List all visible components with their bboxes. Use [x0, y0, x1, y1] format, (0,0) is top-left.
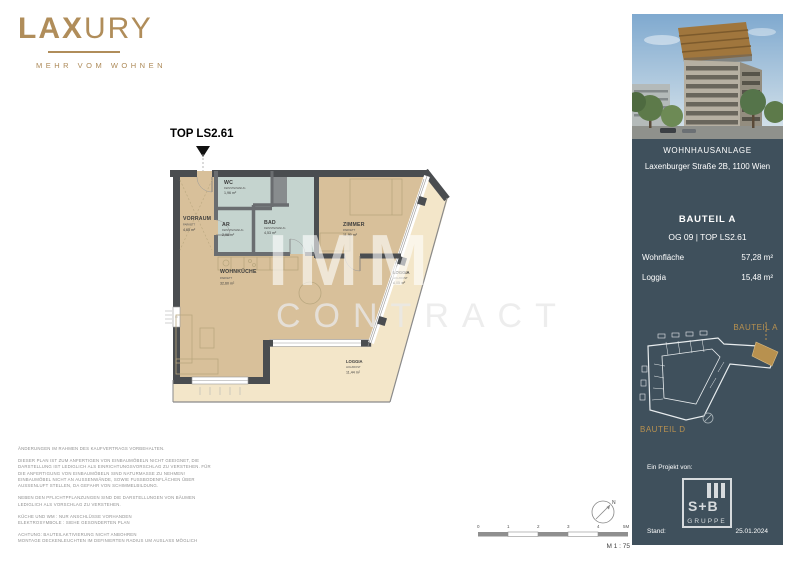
legal-p4: KÜCHE UND WM : NUR ANSCHLÜSSE VORHANDEN …	[18, 514, 248, 526]
room-area: 11,44 m²	[346, 371, 361, 375]
siteplan-bauteil-d: BAUTEIL D	[640, 425, 686, 434]
project-block: WOHNHAUSANLAGE Laxenburger Straße 2B, 11…	[632, 146, 783, 171]
room-bad-upper-floor	[287, 173, 315, 205]
room-floor: HOLZROST	[346, 365, 361, 369]
floor-top-label: OG 09 | TOP LS2.61	[642, 232, 773, 242]
room-name: BAD	[264, 220, 276, 226]
room-area: 4,65 m²	[183, 228, 196, 232]
room-floor: FEINSTEINZEUG	[224, 186, 246, 190]
room-area: 4,05 m²	[393, 281, 406, 285]
scale-tick: 2	[537, 524, 540, 529]
stand-row: Stand: 25.01.2024	[647, 528, 768, 535]
brand-wordmark-light: URY	[84, 12, 153, 45]
legal-p1: ÄNDERUNGEN IM RAHMEN DES KAUFVERTRAGS VO…	[18, 446, 248, 452]
scale-seg-dark	[478, 532, 508, 537]
project-title: WOHNHAUSANLAGE	[632, 146, 783, 155]
sb-logo-bars-icon	[707, 483, 725, 498]
room-area: 11,90 m²	[343, 233, 358, 237]
room-floor: PARKETT	[343, 228, 356, 232]
legal-p2: DIESER PLAN IST ZUM ANFERTIGEN VON EINBA…	[18, 458, 248, 489]
scale-tick: 4	[597, 524, 600, 529]
building-photo	[632, 14, 783, 139]
scale-seg-dark	[538, 532, 568, 537]
area-row: Loggia 15,48 m²	[642, 273, 773, 282]
scale-bar: N 0 1 2 3 4 5M M 1 : 75	[470, 496, 640, 554]
room-name: ZIMMER	[343, 222, 365, 228]
sidebar: WOHNHAUSANLAGE Laxenburger Straße 2B, 11…	[632, 14, 783, 545]
room-area: 4,53 m²	[264, 231, 277, 235]
scale-seg-dark	[598, 532, 628, 537]
room-name: WOHNKÜCHE	[220, 268, 257, 275]
room-floor: PARKETT	[183, 223, 196, 227]
sb-gruppe-logo: S+B GRUPPE	[682, 478, 732, 528]
floorplan-page: LAXURY MEHR VOM WOHNEN TOP LS2.61	[0, 0, 800, 565]
sb-logo-text: S+B	[688, 498, 719, 514]
sb-logo-subtext: GRUPPE	[684, 518, 730, 525]
room-floor: FEINSTEINZEUG	[222, 228, 244, 232]
brand-divider	[48, 51, 120, 53]
scale-tick: 0	[477, 524, 480, 529]
stand-label: Stand:	[647, 528, 666, 535]
bauteil-label: BAUTEIL A	[642, 214, 773, 225]
area-row-label: Wohnfläche	[642, 253, 684, 262]
legal-p5: ACHTUNG: BAUTEILAKTIVIERUNG NICHT ANBOHR…	[18, 532, 248, 544]
project-address: Laxenburger Straße 2B, 1100 Wien	[632, 162, 783, 171]
area-row-value: 57,28 m²	[741, 253, 773, 262]
legal-notes: ÄNDERUNGEN IM RAHMEN DES KAUFVERTRAGS VO…	[18, 446, 248, 551]
stand-date: 25.01.2024	[735, 528, 768, 535]
glass-wall-post-a	[263, 340, 273, 347]
cloud	[748, 28, 776, 36]
room-name: WC	[224, 180, 233, 186]
unit-block: BAUTEIL A OG 09 | TOP LS2.61 Wohnfläche …	[642, 214, 773, 282]
room-area: 32,60 m²	[220, 282, 235, 286]
room-floor: PARKETT	[220, 276, 233, 280]
brand-tagline: MEHR VOM WOHNEN	[36, 61, 166, 70]
room-area: 1,96 m²	[224, 191, 237, 195]
area-row-label: Loggia	[642, 273, 666, 282]
shaft	[272, 173, 287, 205]
siteplan-compass-needle	[705, 415, 711, 421]
siteplan-unit-highlight	[752, 342, 778, 366]
brand-logo: LAXURY MEHR VOM WOHNEN	[18, 14, 166, 70]
room-name: LOGGIA	[346, 359, 363, 364]
scale-tick: 5M	[623, 524, 630, 529]
scale-seg-light	[568, 532, 598, 537]
north-arrow-head	[607, 505, 611, 510]
brand-wordmark: LAXURY	[18, 14, 166, 44]
room-floor: HOLZROST	[393, 276, 408, 280]
legal-p3: NEBEN DEN PFLICHTPFLANZUNGEN SIND DIE DA…	[18, 495, 248, 507]
site-plan: BAUTEIL A BAUTEIL D	[632, 314, 783, 439]
siteplan-bauteil-a: BAUTEIL A	[733, 323, 778, 332]
scale-tick: 3	[567, 524, 570, 529]
scale-seg-light	[508, 532, 538, 537]
project-by-label: Ein Projekt von:	[647, 464, 693, 471]
car	[682, 129, 696, 133]
room-area: 2,98 m²	[222, 233, 235, 237]
area-row-value: 15,48 m²	[741, 273, 773, 282]
area-row: Wohnfläche 57,28 m²	[642, 253, 773, 262]
room-name: AR	[222, 222, 230, 228]
ground	[632, 126, 783, 139]
floor-plan: VORRAUM PARKETT 4,65 m² WC FEINSTEINZEUG…	[150, 125, 530, 435]
room-name: LOGGIA	[393, 270, 410, 275]
cloud	[644, 35, 680, 45]
car	[660, 128, 676, 133]
north-label: N	[612, 500, 616, 506]
room-floor: FEINSTEINZEUG	[264, 226, 286, 230]
brand-wordmark-bold: LAX	[18, 12, 84, 45]
room-name: VORRAUM	[183, 216, 211, 222]
scale-tick: 1	[507, 524, 510, 529]
scale-ratio: M 1 : 75	[607, 543, 631, 550]
bg-window-row	[634, 90, 668, 93]
